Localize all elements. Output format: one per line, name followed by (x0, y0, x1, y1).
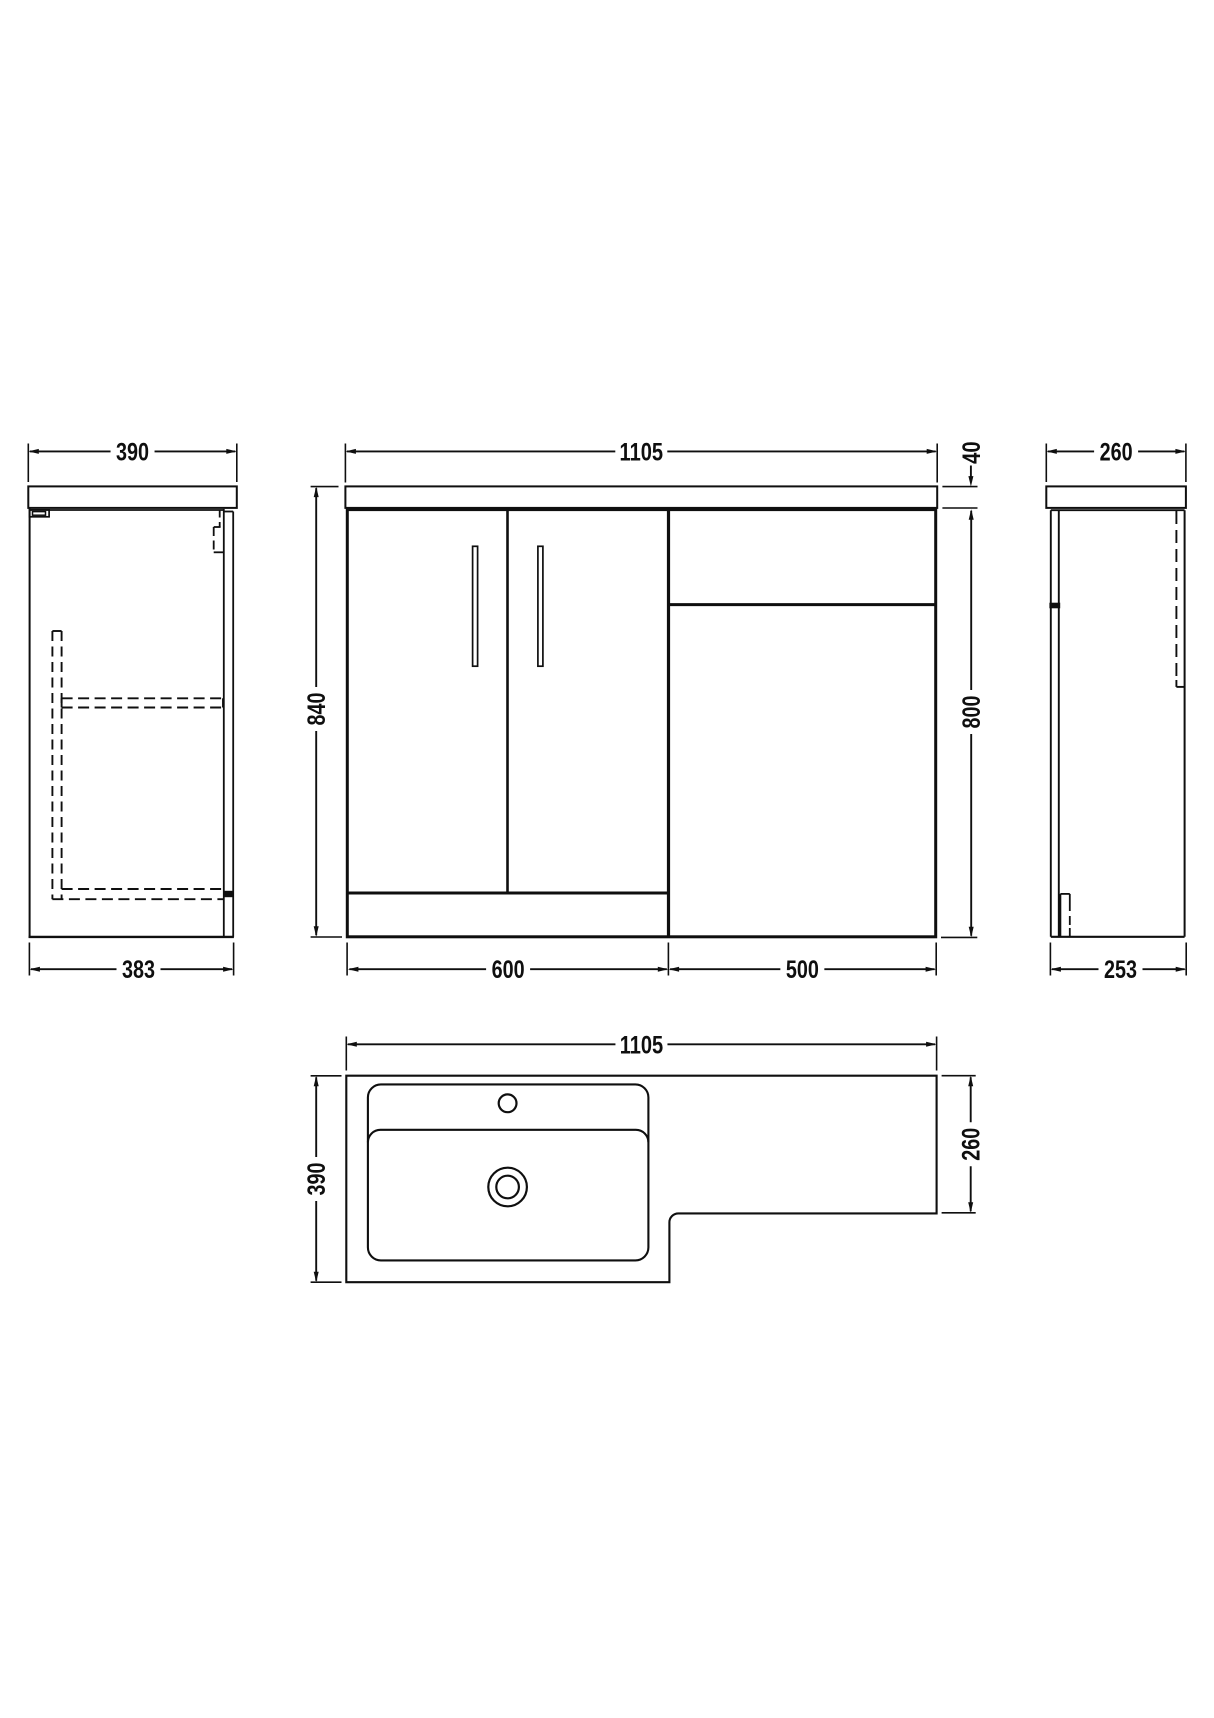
svg-text:840: 840 (304, 693, 331, 726)
svg-text:1105: 1105 (620, 439, 664, 466)
svg-text:260: 260 (959, 1128, 986, 1161)
svg-text:260: 260 (1100, 439, 1133, 466)
svg-text:390: 390 (304, 1163, 331, 1196)
svg-text:800: 800 (959, 696, 986, 729)
svg-text:500: 500 (786, 957, 819, 984)
svg-text:40: 40 (959, 441, 986, 464)
svg-text:1105: 1105 (620, 1032, 664, 1059)
svg-text:600: 600 (492, 957, 525, 984)
svg-text:383: 383 (122, 957, 155, 984)
svg-text:390: 390 (116, 439, 149, 466)
svg-text:253: 253 (1104, 957, 1137, 984)
